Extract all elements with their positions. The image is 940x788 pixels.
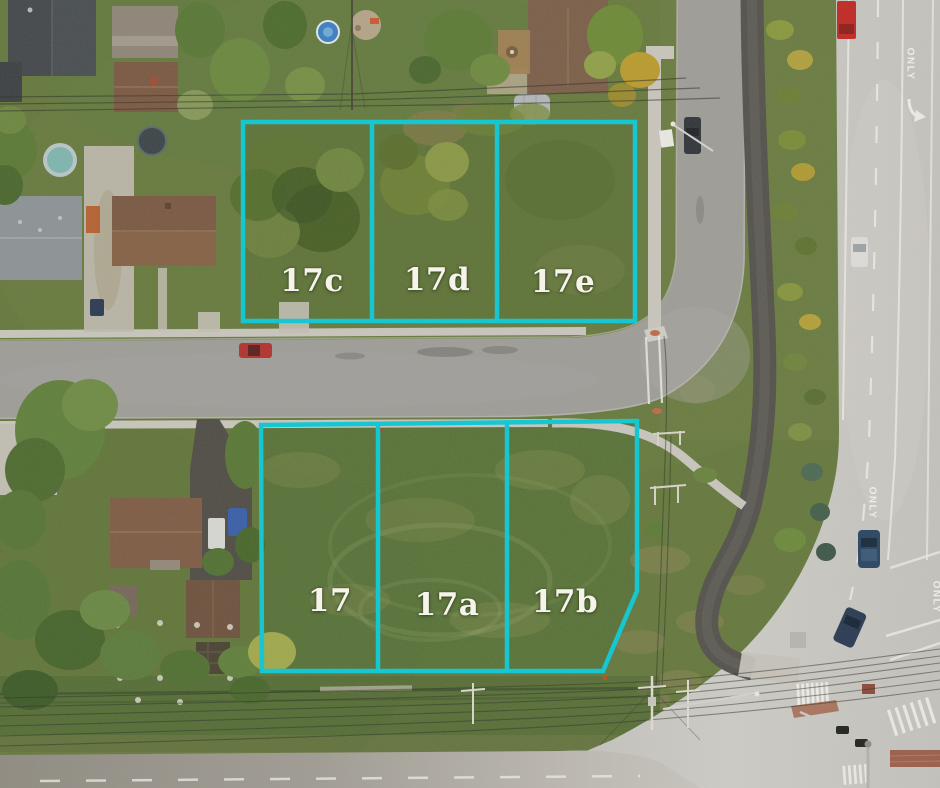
only-lane-marking-north: ONLY — [905, 48, 916, 81]
aerial-photo: 17c 17d 17e 17 17a 17b ONLY ONLY ONLY — [0, 0, 940, 788]
aerial-photo-graphics — [0, 0, 940, 788]
only-lane-marking-south: ONLY — [931, 581, 940, 614]
only-lane-marking-mid: ONLY — [867, 487, 878, 520]
